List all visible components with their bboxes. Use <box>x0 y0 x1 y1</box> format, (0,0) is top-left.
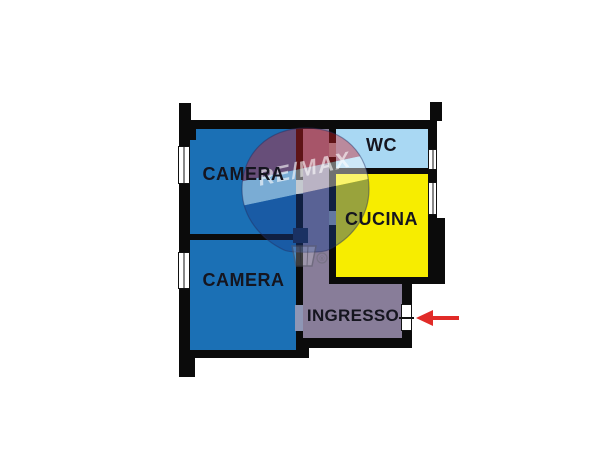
room-label-ingresso: INGRESSO <box>298 307 408 326</box>
room-corridor <box>302 129 330 284</box>
wall-step-connector <box>296 338 309 358</box>
door-opening-camera-top <box>296 180 303 194</box>
window-icon-left-top <box>178 146 190 184</box>
wall-wc-cucina-divider <box>329 168 432 174</box>
wall-stub-top-left <box>179 103 191 121</box>
wall-stub-top-right <box>430 102 442 121</box>
room-label-wc: WC <box>335 136 428 156</box>
wall-ingresso-bottom <box>296 338 412 348</box>
wall-right-thick <box>428 218 445 284</box>
room-label-camera-top: CAMERA <box>190 165 297 185</box>
wall-top <box>179 120 437 129</box>
door-opening-camera-bottom <box>293 228 308 243</box>
room-camera-bottom <box>190 240 297 350</box>
window-icon-wc <box>428 149 437 170</box>
room-label-camera-bottom: CAMERA <box>190 271 297 291</box>
window-icon-cucina <box>428 182 437 215</box>
wall-cucina-bottom <box>329 277 445 284</box>
wall-bottom-camera <box>179 350 309 358</box>
window-icon-left-bottom <box>178 252 190 289</box>
floor-plan: RE/MAX ® CAMERA CAMERA WC CUCINA INGRESS… <box>0 0 600 450</box>
wall-stub-bottom-left <box>179 358 195 377</box>
wall-camera-divider <box>190 234 302 240</box>
room-label-cucina: CUCINA <box>335 210 428 230</box>
entrance-arrow-head <box>416 310 433 326</box>
wall-notch-top-left <box>190 129 196 140</box>
